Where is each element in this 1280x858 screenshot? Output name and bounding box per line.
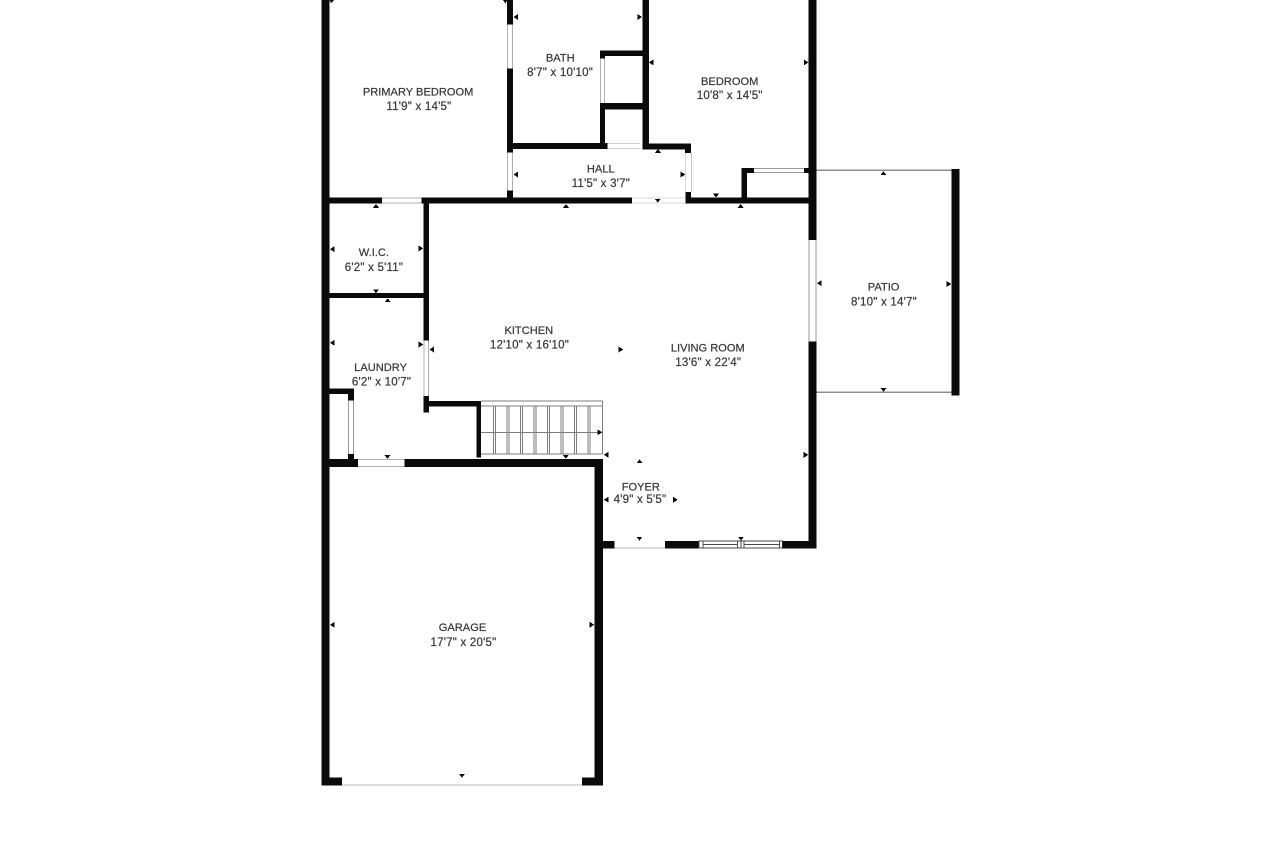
svg-text:11'9" x 14'5": 11'9" x 14'5" [386,101,451,113]
svg-text:PRIMARY BEDROOM: PRIMARY BEDROOM [363,86,474,98]
svg-text:10'8" x 14'5": 10'8" x 14'5" [697,90,763,102]
svg-text:17'7" x 20'5": 17'7" x 20'5" [431,637,497,649]
svg-text:6'2" x 5'11": 6'2" x 5'11" [345,262,403,274]
svg-text:6'2" x 10'7": 6'2" x 10'7" [352,376,411,388]
svg-text:8'10" x 14'7": 8'10" x 14'7" [851,297,917,309]
svg-text:KITCHEN: KITCHEN [504,325,553,337]
svg-text:LIVING ROOM: LIVING ROOM [671,343,745,355]
svg-text:8'7" x 10'10": 8'7" x 10'10" [527,67,593,79]
svg-text:LAUNDRY: LAUNDRY [354,362,407,374]
svg-text:W.I.C.: W.I.C. [359,247,389,259]
svg-text:HALL: HALL [587,163,615,175]
svg-text:PATIO: PATIO [868,282,900,294]
svg-text:13'6" x 22'4": 13'6" x 22'4" [675,357,741,369]
svg-text:12'10" x 16'10": 12'10" x 16'10" [490,339,569,351]
svg-text:4'9" x 5'5": 4'9" x 5'5" [614,494,667,506]
svg-text:FOYER: FOYER [622,481,660,493]
svg-text:BEDROOM: BEDROOM [701,76,758,88]
svg-text:11'5" x 3'7": 11'5" x 3'7" [572,178,630,190]
svg-text:BATH: BATH [546,53,575,65]
svg-text:GARAGE: GARAGE [439,622,486,634]
